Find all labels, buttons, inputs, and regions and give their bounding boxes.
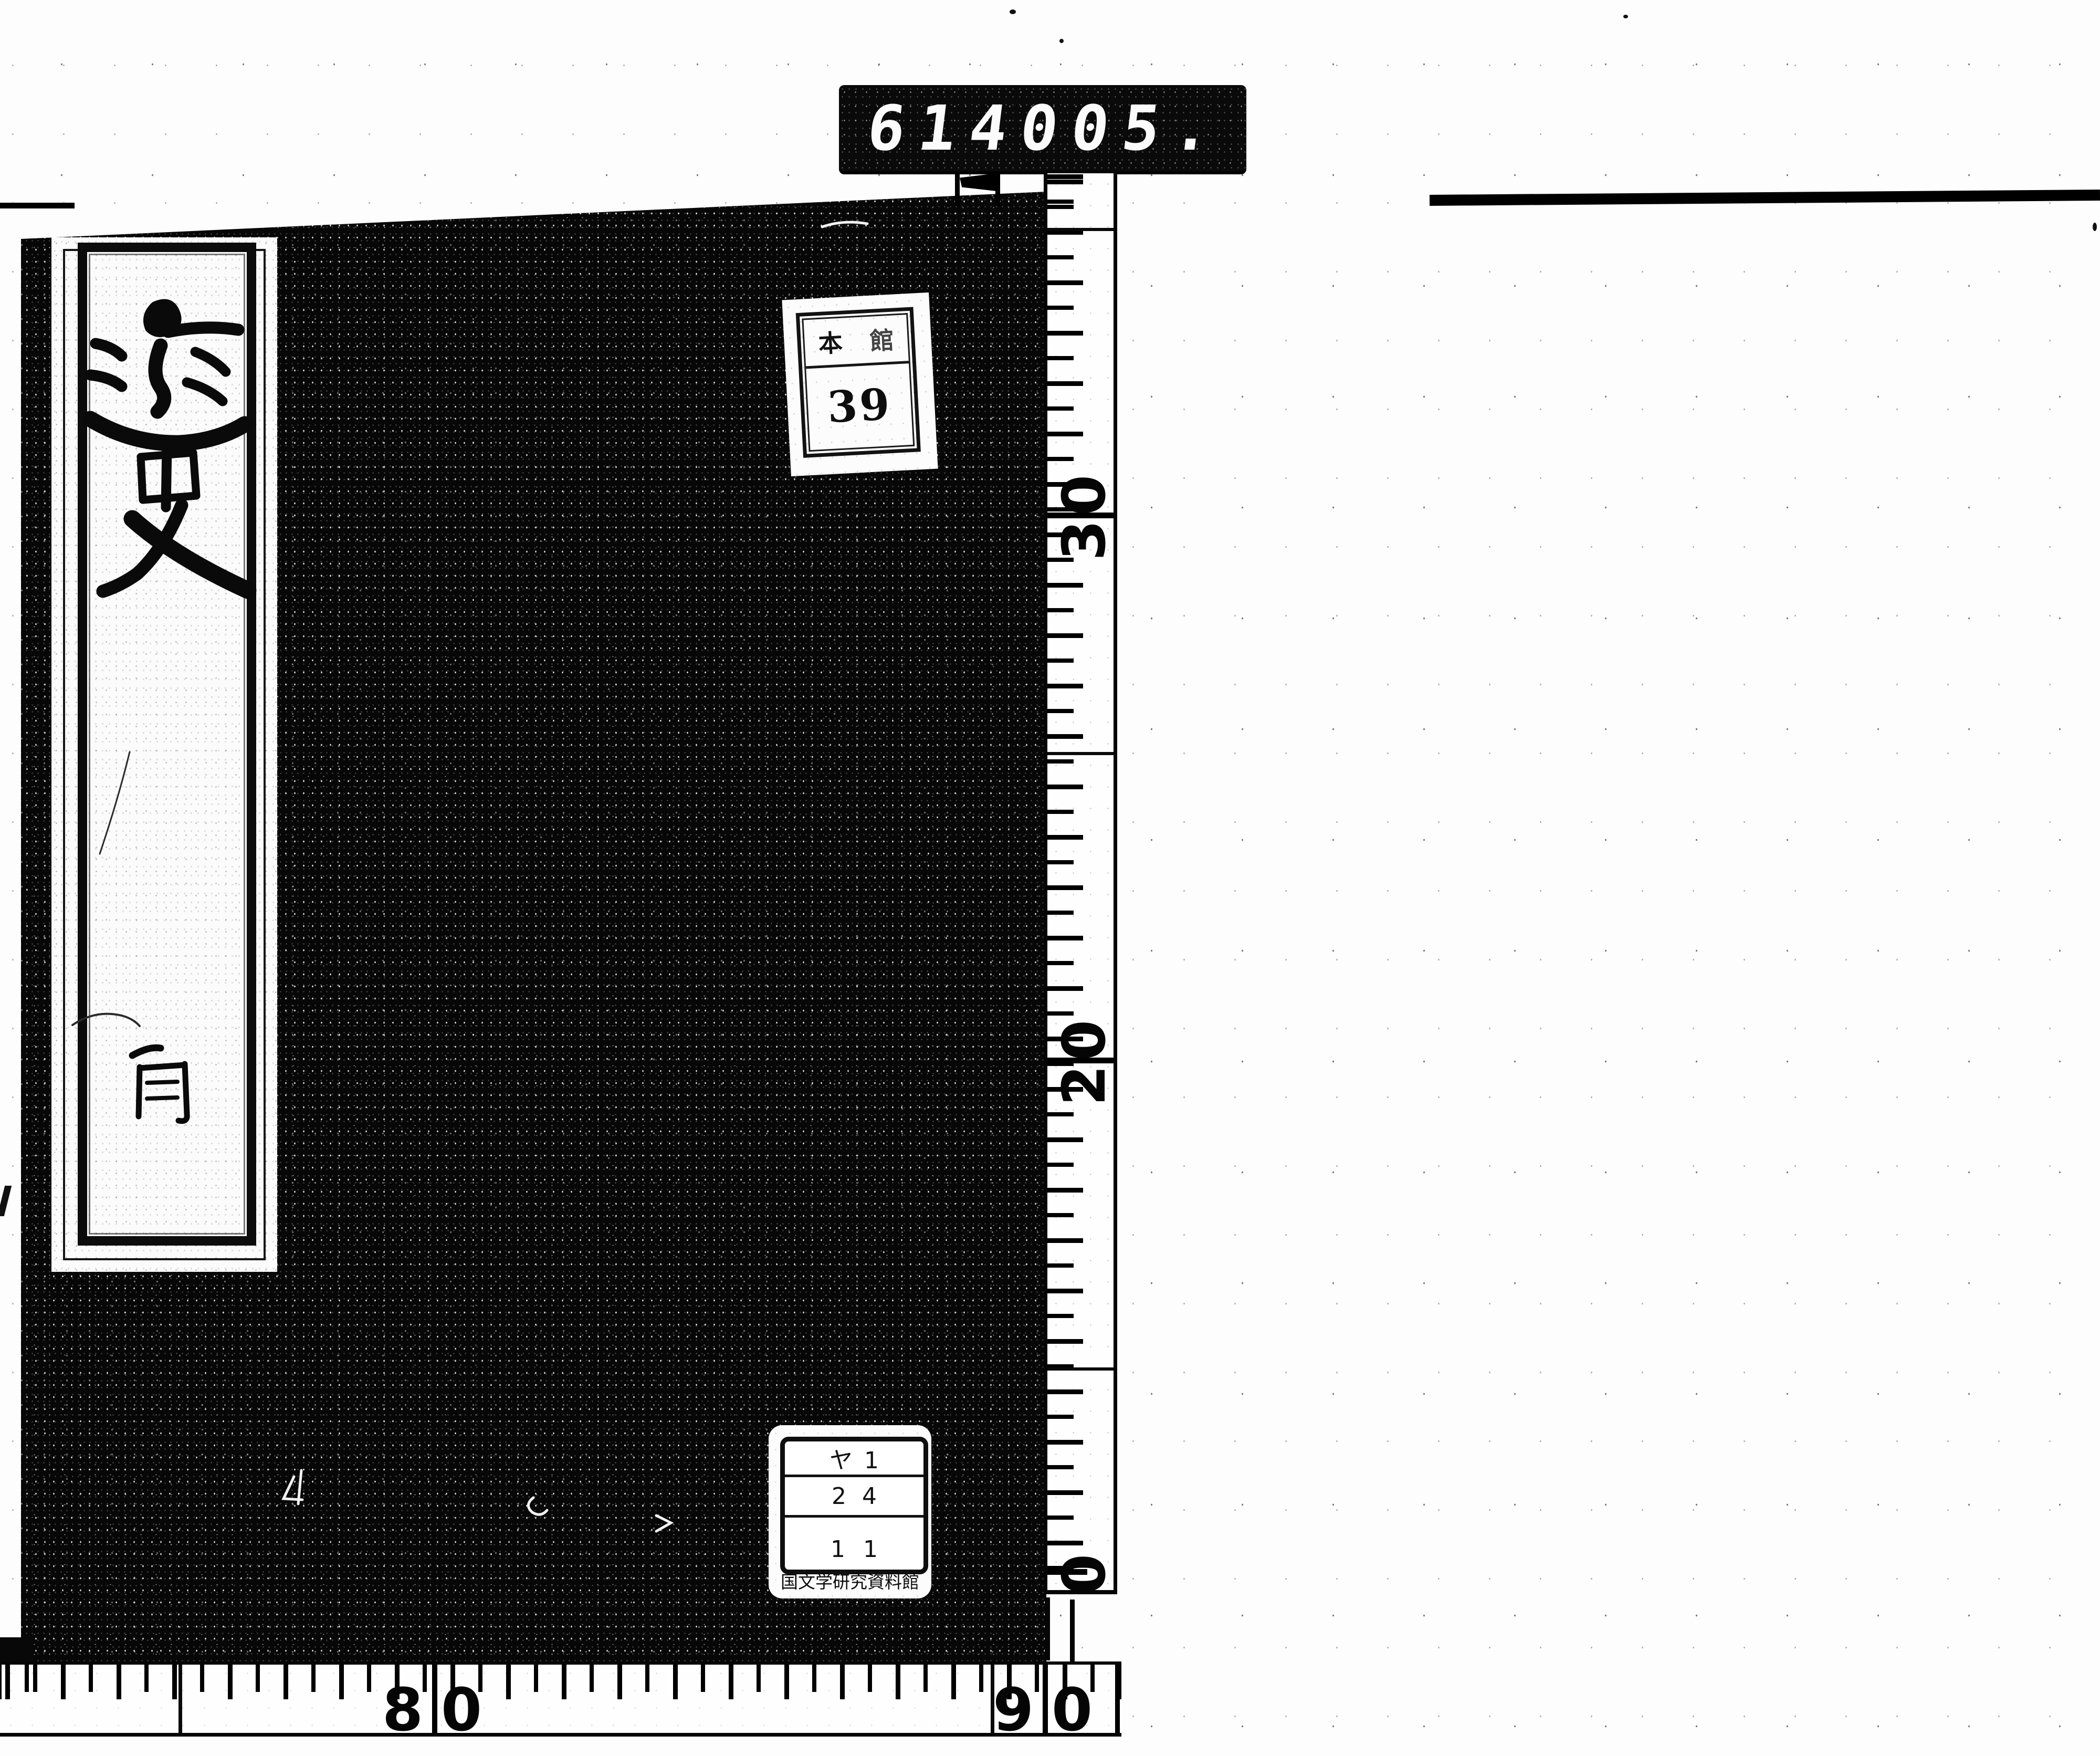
shelf-header-char-2: 館 <box>855 320 908 358</box>
ruler-end-line <box>1115 1665 1120 1733</box>
page-margin-line <box>1430 190 2100 206</box>
title-calligraphy <box>51 237 277 1272</box>
ruler-joint <box>1047 228 1114 231</box>
corner-tick <box>1045 1597 1050 1660</box>
counter-digits-right: 005. <box>1016 92 1229 164</box>
corner-tick <box>1070 1600 1075 1661</box>
vertical-ruler-label-0: 0 <box>1056 1509 1114 1635</box>
shelf-label-inner-frame: 本 館 39 <box>802 313 915 452</box>
call-number-row: ヤ1 <box>785 1441 923 1477</box>
institution-name: 国文学研究資料館 <box>769 1568 931 1593</box>
horizontal-ruler-ticks-short <box>0 1665 1121 1692</box>
vertical-ruler: 30 20 0 <box>1044 170 1117 1594</box>
scan-artifact <box>0 1186 12 1216</box>
frame-counter-display: 614 005. <box>839 85 1246 174</box>
counter-mount-wedge <box>960 173 996 191</box>
vertical-ruler-label-20: 20 <box>1056 998 1114 1124</box>
shelf-label: 本 館 39 <box>782 292 938 476</box>
counter-mount-post-left <box>955 172 960 206</box>
vertical-ruler-label-30: 30 <box>1056 453 1114 579</box>
scan-artifact <box>1010 9 1016 14</box>
call-number-label: ヤ1 24 11 国文学研究資料館 <box>769 1425 931 1598</box>
scan-artifact <box>1623 15 1628 18</box>
shelf-label-number: 39 <box>806 363 912 434</box>
scan-page: 逸史 首 <box>0 0 2100 1756</box>
shelf-label-header: 本 館 <box>803 315 909 369</box>
counter-digits-left: 614 <box>864 92 1025 164</box>
ruler-bottom-edge <box>0 1733 1121 1737</box>
ruler-joint <box>1047 1367 1114 1371</box>
cover-corner-block <box>0 1637 34 1665</box>
vertical-ruler-ticks-short <box>1047 173 1074 1590</box>
ruler-joint <box>1047 752 1114 755</box>
shelf-label-frame: 本 館 39 <box>796 307 921 457</box>
call-number-row: 24 <box>785 1477 923 1518</box>
ruler-joint <box>178 1665 182 1733</box>
cover-edge-sliver <box>0 203 75 208</box>
scan-artifact <box>1059 39 1064 43</box>
call-number-row: 11 <box>785 1518 923 1564</box>
call-number-frame: ヤ1 24 11 <box>780 1437 928 1574</box>
scan-artifact <box>2093 223 2097 231</box>
shelf-header-char-1: 本 <box>804 323 857 360</box>
horizontal-ruler: 80 90 <box>0 1661 1121 1735</box>
